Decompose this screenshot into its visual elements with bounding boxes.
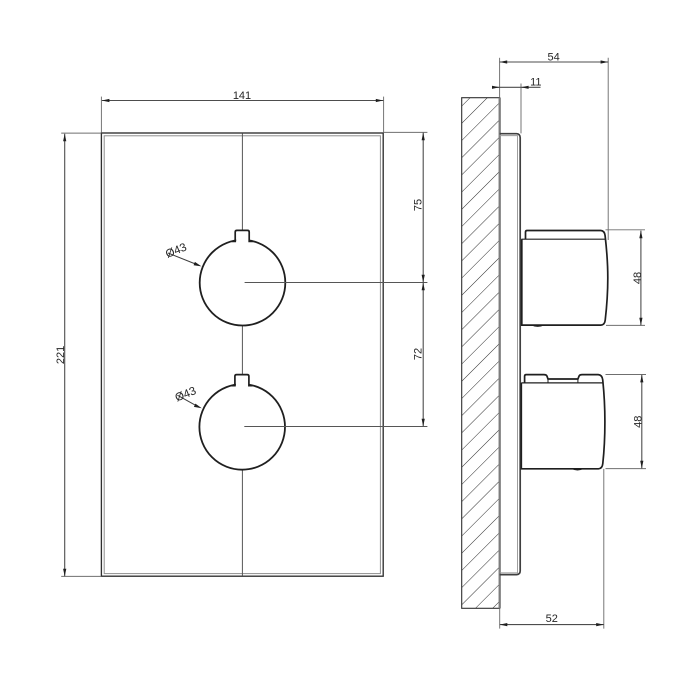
svg-text:11: 11 [530,77,541,89]
svg-text:52: 52 [546,613,558,625]
svg-text:221: 221 [55,346,67,364]
svg-text:48: 48 [633,416,645,428]
svg-text:75: 75 [413,199,425,211]
svg-text:48: 48 [632,272,644,284]
svg-text:54: 54 [547,51,559,63]
svg-text:141: 141 [233,90,251,102]
svg-text:72: 72 [413,348,425,360]
